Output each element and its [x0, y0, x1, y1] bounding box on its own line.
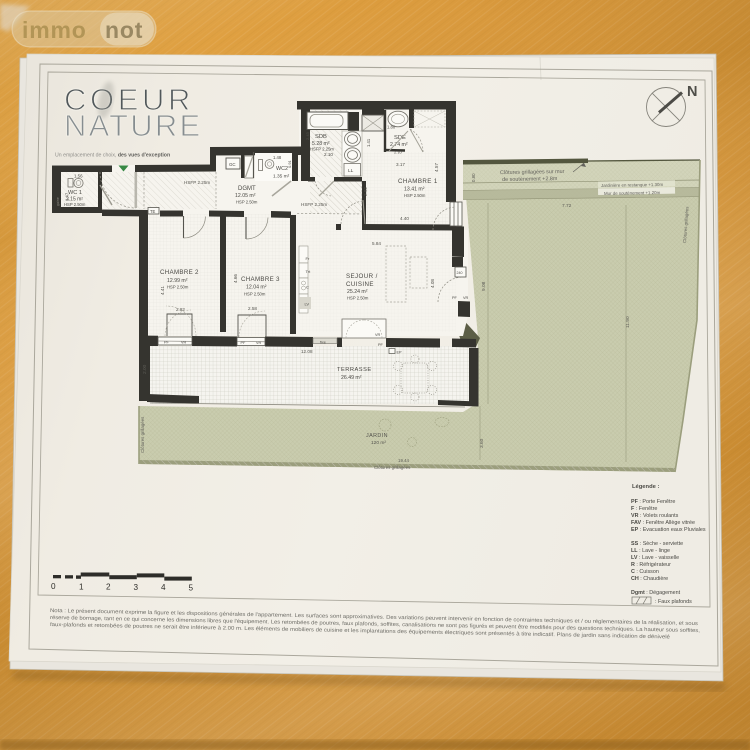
- svg-text:Un emplacement de choix, des v: Un emplacement de choix, des vues d'exce…: [55, 153, 170, 159]
- svg-text:F : Fenêtre: F : Fenêtre: [631, 506, 657, 512]
- svg-text:1.48: 1.48: [273, 155, 282, 160]
- svg-text:VR: VR: [181, 341, 187, 345]
- svg-text:2.10: 2.10: [394, 150, 403, 155]
- svg-text:1.41: 1.41: [366, 138, 371, 147]
- svg-text:PF : Porte Fenêtre: PF : Porte Fenêtre: [631, 499, 675, 505]
- svg-text:HSP 2.50m: HSP 2.50m: [236, 200, 258, 205]
- svg-text:LL : Lave - linge: LL : Lave - linge: [631, 548, 670, 554]
- svg-text:0: 0: [51, 582, 56, 591]
- svg-text:2.10: 2.10: [324, 152, 333, 157]
- svg-text:0.91: 0.91: [287, 159, 292, 168]
- svg-text:4.08: 4.08: [430, 279, 435, 288]
- svg-text:HSFP 2.25m: HSFP 2.25m: [301, 202, 327, 207]
- svg-text:4.41: 4.41: [160, 286, 165, 295]
- svg-text:240: 240: [457, 271, 463, 275]
- svg-text:Fr: Fr: [306, 256, 310, 261]
- svg-text:fixe: fixe: [320, 341, 326, 345]
- svg-text:5: 5: [189, 584, 194, 593]
- svg-text:25.24 m²: 25.24 m²: [347, 289, 368, 295]
- svg-text:TERRASSE: TERRASSE: [337, 367, 372, 373]
- svg-text:VR : Volets roulants: VR : Volets roulants: [631, 513, 679, 519]
- svg-text:immo: immo: [22, 17, 87, 43]
- svg-text:HSFP 2.25m: HSFP 2.25m: [310, 147, 334, 152]
- svg-text:SDB: SDB: [315, 134, 327, 140]
- svg-text:LL: LL: [348, 168, 354, 174]
- svg-text:CHAMBRE 2: CHAMBRE 2: [160, 269, 199, 276]
- svg-text:Légende :: Légende :: [632, 484, 659, 490]
- svg-text:PF: PF: [241, 341, 247, 345]
- svg-text:CHAMBRE 3: CHAMBRE 3: [241, 276, 280, 283]
- svg-text:CHAMBRE 1: CHAMBRE 1: [398, 178, 438, 185]
- svg-text:R : Réfrigérateur: R : Réfrigérateur: [631, 562, 671, 568]
- svg-text:HSP 2.50m: HSP 2.50m: [64, 202, 86, 207]
- svg-text:PF: PF: [164, 341, 170, 345]
- svg-text:HSP 2.50m: HSP 2.50m: [167, 285, 189, 290]
- svg-text:12.99 m²: 12.99 m²: [167, 278, 188, 284]
- svg-text:not: not: [105, 17, 143, 43]
- svg-text:gaine: gaine: [56, 197, 60, 206]
- svg-text:LV : Lave - vaisselle: LV : Lave - vaisselle: [631, 555, 679, 561]
- svg-text:4.66: 4.66: [233, 274, 238, 283]
- svg-text:12.04 m²: 12.04 m²: [246, 285, 267, 291]
- svg-text:HSP 2.50m: HSP 2.50m: [244, 292, 266, 297]
- svg-text:CUISINE: CUISINE: [346, 281, 374, 288]
- svg-text:2.00: 2.00: [142, 364, 148, 374]
- svg-text:0.80: 0.80: [471, 173, 476, 182]
- svg-text:2.92: 2.92: [363, 187, 368, 196]
- svg-text:FAV : Fenêtre Allège vitrée: FAV : Fenêtre Allège vitrée: [631, 520, 695, 526]
- svg-text:19.44: 19.44: [398, 458, 410, 463]
- svg-text:GC: GC: [229, 162, 236, 167]
- svg-text:JARDIN: JARDIN: [366, 433, 388, 439]
- svg-text:HSP 2.50m: HSP 2.50m: [347, 296, 369, 301]
- svg-text:1.80: 1.80: [387, 125, 396, 130]
- svg-text:2.43: 2.43: [305, 131, 310, 140]
- svg-text:26.49 m²: 26.49 m²: [341, 375, 362, 381]
- svg-text:5.84: 5.84: [372, 241, 381, 246]
- svg-text:7.72: 7.72: [562, 203, 572, 209]
- svg-text:PF: PF: [452, 296, 458, 300]
- svg-text:1: 1: [79, 582, 84, 591]
- svg-text:1.56: 1.56: [74, 174, 83, 179]
- svg-text:DGMT: DGMT: [238, 186, 256, 192]
- svg-text:TE: TE: [150, 209, 156, 214]
- svg-text:C : Cuisson: C : Cuisson: [631, 569, 659, 575]
- svg-text:SEJOUR /: SEJOUR /: [346, 273, 378, 280]
- svg-text:12.05 m²: 12.05 m²: [235, 193, 256, 199]
- svg-text:13.41 m²: 13.41 m²: [404, 187, 425, 193]
- svg-text:11.90: 11.90: [625, 316, 631, 328]
- svg-text:CH : Chaudière: CH : Chaudière: [631, 576, 668, 582]
- svg-text:12.08: 12.08: [301, 349, 313, 354]
- svg-text:Clôtures grillagées sur mur: Clôtures grillagées sur mur: [500, 169, 565, 176]
- svg-text:HSFP 2.25m: HSFP 2.25m: [184, 180, 210, 185]
- svg-text:120 m²: 120 m²: [371, 440, 386, 446]
- svg-text:3.60: 3.60: [479, 438, 485, 448]
- svg-text:Clôtures grillagées: Clôtures grillagées: [374, 465, 411, 470]
- svg-text:VR: VR: [463, 296, 469, 300]
- svg-text:EP: EP: [397, 351, 403, 355]
- svg-text:: Faux plafonds: : Faux plafonds: [655, 599, 692, 605]
- svg-text:3: 3: [134, 583, 139, 592]
- svg-text:1.35 m²: 1.35 m²: [273, 174, 290, 180]
- svg-text:9.08: 9.08: [481, 281, 487, 291]
- svg-text:4.40: 4.40: [400, 216, 409, 221]
- svg-text:4.57: 4.57: [434, 163, 439, 172]
- svg-text:SS : Sèche - serviette: SS : Sèche - serviette: [631, 541, 683, 547]
- svg-text:de soutènement +2.8m: de soutènement +2.8m: [502, 176, 558, 183]
- svg-text:4: 4: [161, 583, 166, 592]
- svg-text:EP : Evacuation eaux Pluviales: EP : Evacuation eaux Pluviales: [631, 527, 706, 533]
- svg-text:2: 2: [106, 583, 111, 592]
- svg-text:NATURE: NATURE: [64, 108, 202, 143]
- svg-text:VR: VR: [256, 341, 262, 345]
- svg-text:3.17: 3.17: [396, 162, 405, 167]
- svg-text:Mur de soutènement +1.20m: Mur de soutènement +1.20m: [604, 190, 661, 196]
- svg-text:1.47: 1.47: [65, 192, 70, 201]
- svg-text:VR: VR: [375, 333, 381, 337]
- svg-text:WC 1: WC 1: [68, 190, 82, 196]
- svg-text:N: N: [687, 84, 697, 100]
- svg-text:Dgmt : Dégagement: Dgmt : Dégagement: [631, 590, 681, 596]
- svg-text:2.58: 2.58: [248, 306, 257, 311]
- svg-text:HSP 2.50m: HSP 2.50m: [404, 193, 426, 198]
- svg-text:PF: PF: [378, 343, 384, 347]
- svg-text:LV: LV: [305, 302, 310, 307]
- svg-text:C: C: [306, 285, 309, 290]
- svg-text:Clôtures grillagées: Clôtures grillagées: [140, 416, 145, 453]
